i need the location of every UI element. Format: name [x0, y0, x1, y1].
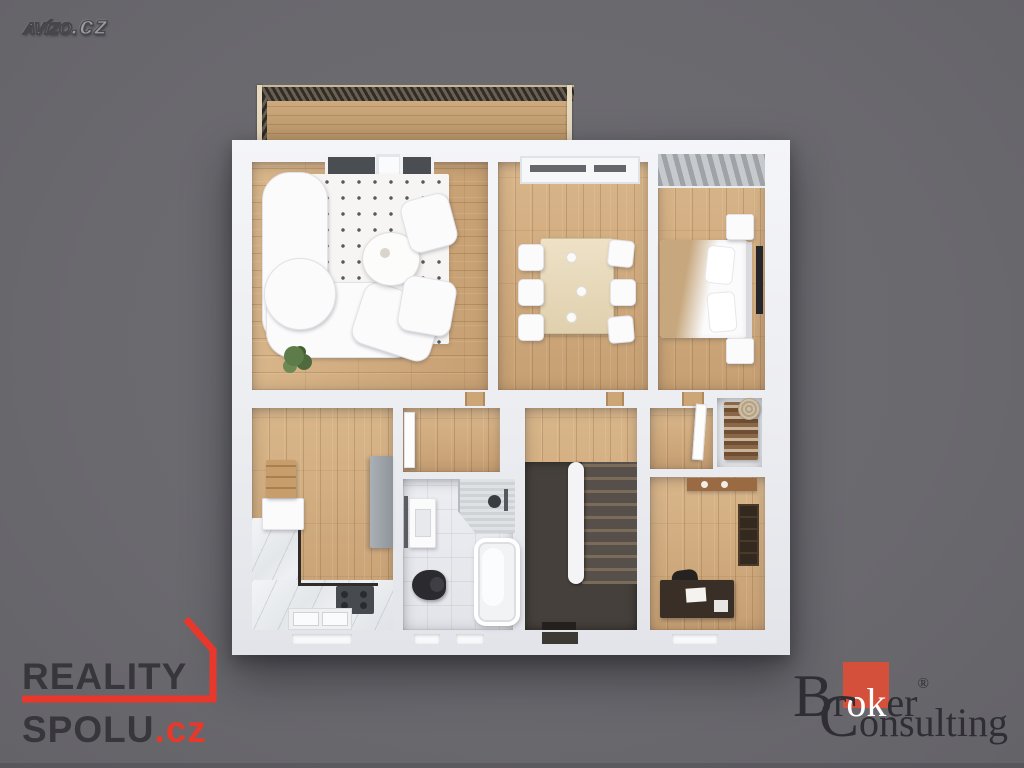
- coffee-table-decor: [380, 248, 390, 258]
- bookshelf: [738, 504, 759, 566]
- bathroom-mirror: [404, 496, 408, 548]
- wall-console: [687, 478, 757, 491]
- window-pane: [594, 165, 626, 172]
- burner: [360, 602, 367, 609]
- door-opening: [465, 392, 485, 406]
- desk: [660, 580, 734, 618]
- dining-window: [520, 156, 640, 184]
- potted-plant: [284, 346, 304, 366]
- broker-consulting-logo: Broker® Consulting: [793, 660, 1018, 760]
- sink-basin: [293, 612, 319, 626]
- sink-basin: [322, 612, 348, 626]
- shower-drain: [488, 495, 501, 508]
- pillow: [706, 291, 737, 333]
- window-sill: [456, 634, 484, 644]
- bathroom-vanity: [409, 498, 436, 548]
- sofa: [264, 258, 336, 330]
- window-pane: [530, 165, 586, 172]
- stair-landing-step: [542, 622, 576, 630]
- balcony-deck: [262, 97, 570, 143]
- dining-chair: [607, 315, 635, 344]
- armchair: [396, 274, 459, 339]
- bed: [660, 240, 748, 338]
- dining-chair: [518, 314, 544, 341]
- console-knob: [701, 481, 708, 488]
- avizo-brand-text: AVÍZO: [23, 21, 72, 38]
- reality-text: REALITY: [22, 656, 187, 698]
- nightstand: [726, 338, 754, 364]
- open-door: [404, 412, 415, 468]
- kitchen-shelf: [266, 460, 296, 498]
- dining-table: [540, 238, 614, 334]
- registered-mark: ®: [917, 676, 928, 692]
- avizo-tld-text: .cz: [71, 12, 109, 40]
- burner: [360, 591, 367, 598]
- kitchen-sink: [288, 608, 352, 630]
- stairwell: [525, 462, 637, 630]
- door-opening: [606, 392, 624, 406]
- hallway-floor: [403, 408, 500, 472]
- bedroom-blinds: [658, 154, 765, 188]
- consulting-initial: C: [819, 683, 859, 749]
- broker-line2: Consulting: [819, 692, 1008, 747]
- nightstand: [726, 214, 754, 240]
- window-sill: [672, 634, 718, 644]
- toilet: [412, 570, 446, 600]
- burner: [341, 591, 348, 598]
- refrigerator: [370, 456, 393, 548]
- scene-background: AVÍZO.cz: [0, 0, 1024, 768]
- vanity-sink: [415, 509, 431, 537]
- dining-chair: [607, 239, 636, 269]
- stair-railing: [568, 462, 584, 584]
- avizo-watermark: AVÍZO.cz: [23, 12, 109, 41]
- wall-tv: [756, 246, 763, 314]
- place-setting: [576, 286, 587, 297]
- toilet-seat: [430, 577, 444, 592]
- window-sill: [414, 634, 440, 644]
- dining-chair: [518, 279, 544, 306]
- kitchen-counter-edge: [298, 526, 301, 586]
- place-setting: [566, 312, 577, 323]
- shower-fixture: [504, 489, 508, 511]
- spolu-tld-text: .cz: [154, 709, 206, 750]
- balcony-post: [257, 85, 262, 143]
- consulting-rest: onsulting: [859, 700, 1008, 745]
- image-bottom-edge: [0, 763, 1024, 768]
- reality-spolu-logo: REALITY SPOLU.cz: [20, 616, 235, 751]
- pillow: [704, 245, 736, 286]
- desk-laptop: [714, 600, 728, 612]
- bathtub: [474, 538, 520, 626]
- headboard: [746, 242, 752, 338]
- bathtub-basin: [482, 548, 504, 606]
- balcony-railing: [258, 85, 574, 101]
- kitchen-counter: [262, 498, 304, 530]
- floor-plan: [232, 140, 790, 655]
- dining-chair: [610, 279, 636, 306]
- dining-chair: [518, 244, 544, 271]
- woven-basket: [738, 398, 760, 420]
- stair-treads: [582, 462, 637, 584]
- place-setting: [566, 252, 577, 263]
- console-knob: [721, 481, 728, 488]
- desk-papers: [686, 587, 707, 602]
- spolu-text: SPOLU.cz: [22, 709, 207, 751]
- balcony: [258, 85, 574, 143]
- window-sill: [292, 634, 352, 644]
- stair-base-opening: [542, 632, 578, 644]
- balcony-post: [567, 85, 572, 143]
